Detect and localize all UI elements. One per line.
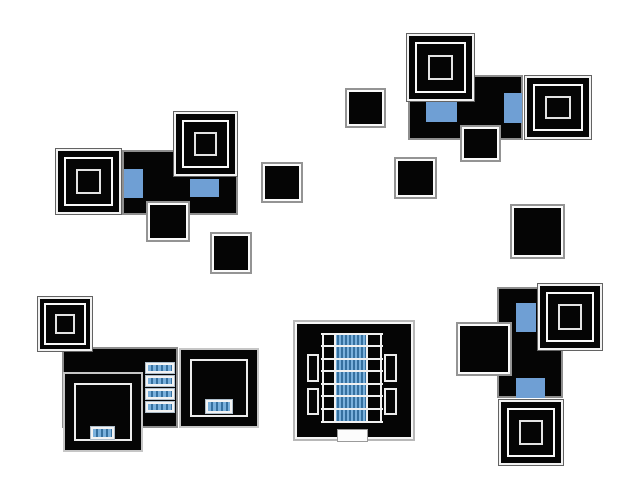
hall-hline-7	[321, 408, 383, 410]
hall-hline-3	[321, 358, 383, 360]
box-isolated-4	[394, 157, 437, 199]
hall-slot-2	[307, 388, 319, 415]
hall-hline-2	[321, 345, 383, 347]
table-topright-1	[406, 33, 475, 102]
hall-hline-5	[321, 383, 383, 385]
table-bottomright-2	[498, 399, 564, 466]
chair-topleft-2	[190, 179, 219, 197]
chair-bottomright-1	[516, 303, 536, 332]
bench-bottomleft-3	[146, 389, 174, 399]
chair-topright-2	[504, 93, 522, 123]
table-topleft-1-center-ring	[76, 169, 101, 194]
bench-in-desk-1	[91, 427, 114, 439]
chair-topright-1	[426, 102, 457, 122]
table-bottomright-1	[537, 283, 603, 351]
box-isolated-1	[210, 232, 252, 274]
table-bottomright-1-center-ring	[558, 304, 582, 329]
box-isolated-5	[510, 204, 565, 259]
table-topleft-2	[173, 111, 238, 177]
box-isolated-3	[345, 88, 386, 128]
bench-bottomleft-4	[146, 402, 174, 412]
desk-bottomleft-1	[63, 372, 143, 452]
chair-topleft-1	[124, 169, 143, 198]
desk-bottomleft-2	[179, 348, 259, 428]
bench-in-desk-2	[206, 400, 232, 413]
table-bottomright-2-center-ring	[519, 420, 543, 445]
floorplan-canvas	[0, 0, 636, 503]
table-topright-1-center-ring	[428, 55, 453, 80]
bench-bottomleft-1	[146, 363, 174, 373]
hall-hline-1	[321, 333, 383, 335]
box-topright	[460, 125, 501, 162]
hall-door	[337, 429, 368, 442]
hall-hline-6	[321, 395, 383, 397]
table-topright-2	[524, 75, 592, 140]
table-bottomleft	[37, 296, 93, 352]
hall-slot-4	[384, 388, 397, 415]
table-topleft-2-center-ring	[194, 132, 218, 156]
table-bottomleft-center-ring	[55, 314, 76, 335]
chair-bottomright-2	[516, 378, 545, 398]
box-isolated-2	[261, 162, 303, 203]
hall-slot-3	[384, 354, 397, 382]
table-topright-2-center-ring	[545, 96, 570, 120]
box-bottomright	[456, 322, 512, 376]
hall-hline-8	[321, 421, 383, 423]
box-topleft	[146, 201, 190, 242]
bench-bottomleft-2	[146, 376, 174, 386]
hall-slot-1	[307, 354, 319, 382]
hall-hline-4	[321, 370, 383, 372]
table-topleft-1	[55, 148, 122, 215]
